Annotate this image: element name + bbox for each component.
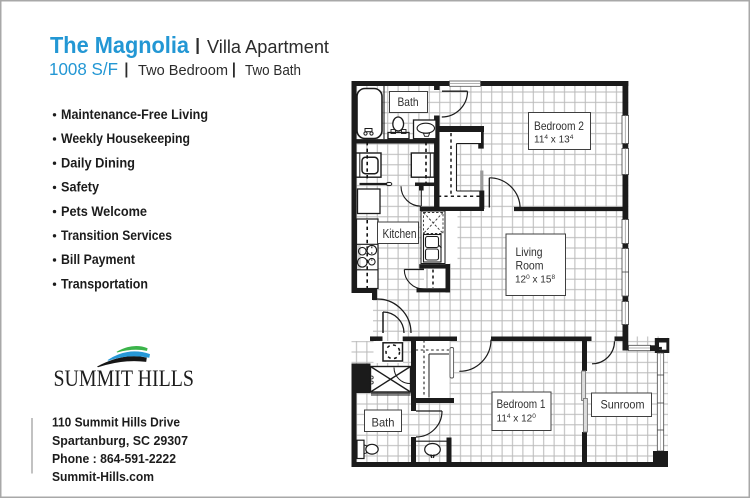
svg-text:Two Bedroom: Two Bedroom xyxy=(138,63,228,79)
svg-text:Bill Payment: Bill Payment xyxy=(61,252,135,267)
svg-text:Weekly Housekeeping: Weekly Housekeeping xyxy=(61,131,190,146)
svg-text:Villa Apartment: Villa Apartment xyxy=(207,37,329,57)
svg-text:Summit-Hills.com: Summit-Hills.com xyxy=(52,470,154,484)
svg-text:Bath: Bath xyxy=(372,416,395,430)
svg-text:Bedroom 1: Bedroom 1 xyxy=(497,397,546,411)
svg-text:Safety: Safety xyxy=(61,180,100,195)
svg-text:Maintenance-Free Living: Maintenance-Free Living xyxy=(61,107,208,122)
svg-text:110 Summit Hills Drive: 110 Summit Hills Drive xyxy=(52,416,180,430)
svg-text:Living: Living xyxy=(516,245,543,259)
svg-text:114 x 120: 114 x 120 xyxy=(497,413,537,425)
svg-text:Two Bath: Two Bath xyxy=(245,63,301,79)
svg-text:The Magnolia: The Magnolia xyxy=(50,32,190,58)
svg-text:Daily Dining: Daily Dining xyxy=(61,155,135,170)
svg-text:Transition Services: Transition Services xyxy=(61,228,172,243)
svg-text:Transportation: Transportation xyxy=(61,276,148,291)
svg-text:Pets Welcome: Pets Welcome xyxy=(61,204,147,219)
svg-text:Bath: Bath xyxy=(398,95,419,109)
svg-text:Kitchen: Kitchen xyxy=(383,227,417,241)
svg-text:1008 S/F: 1008 S/F xyxy=(49,59,118,79)
svg-text:114 x 134: 114 x 134 xyxy=(534,134,574,146)
svg-text:Bedroom 2: Bedroom 2 xyxy=(534,119,584,133)
svg-text:Phone : 864-591-2222: Phone : 864-591-2222 xyxy=(52,452,176,466)
svg-text:SUMMIT HILLS: SUMMIT HILLS xyxy=(54,366,195,391)
svg-text:Spartanburg, SC 29307: Spartanburg, SC 29307 xyxy=(52,434,188,448)
svg-text:Sunroom: Sunroom xyxy=(601,398,645,412)
svg-text:120 x 158: 120 x 158 xyxy=(515,274,555,286)
svg-text:Room: Room xyxy=(516,259,544,273)
